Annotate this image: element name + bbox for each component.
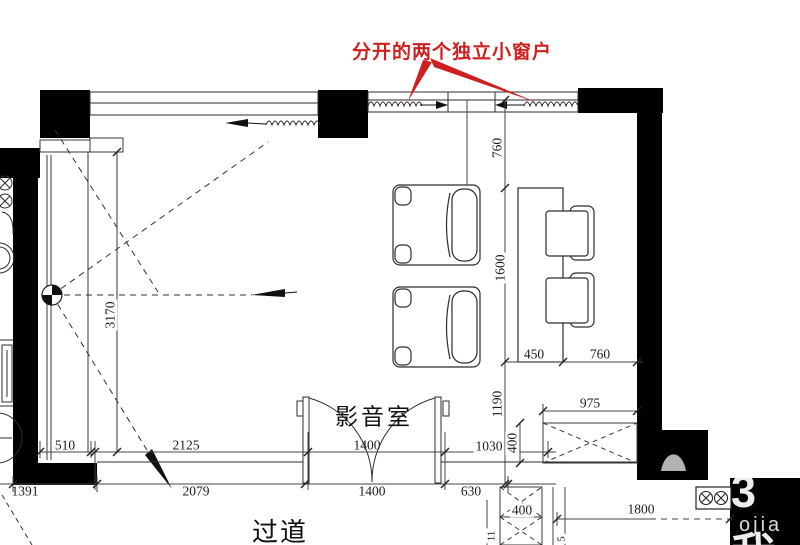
dim-400-depth: 400 (505, 431, 519, 455)
dim-2125: 2125 (173, 438, 200, 452)
dining-chair (546, 206, 594, 260)
red-arrow-left-icon (408, 60, 432, 101)
dimension-ticks (9, 96, 734, 523)
dining-chair (546, 273, 594, 327)
burner-icon (0, 194, 12, 208)
floorplan-drawing (0, 0, 800, 545)
annotation-arrows (408, 58, 538, 103)
annotation-text: 分开的两个独立小窗户 (352, 37, 552, 64)
wall (318, 90, 368, 138)
dim-1190: 1190 (490, 389, 504, 420)
projector-point-icon (42, 285, 62, 305)
floorplan-page: 分开的两个独立小窗户 760 1600 450 760 1190 975 400… (0, 0, 800, 545)
dim-975: 975 (580, 396, 600, 410)
red-arrow-right-icon (430, 58, 538, 103)
dim-450: 450 (524, 347, 544, 361)
projection-lines (52, 130, 268, 455)
dim-3170: 3170 (103, 300, 117, 331)
dim-1600: 1600 (493, 253, 507, 284)
wall (0, 148, 40, 178)
corridor-dashed-line (2, 495, 32, 545)
cabinet-box (543, 423, 637, 463)
dim-1391: 1391 (12, 484, 39, 498)
switch-symbol-box (696, 487, 731, 509)
watermark-subtext: ojia (739, 514, 782, 537)
window-band-right (368, 92, 578, 112)
armchair (393, 185, 480, 265)
dim-760-window: 760 (490, 136, 504, 160)
dim-partial-11: 11 (487, 529, 498, 544)
armchair (393, 287, 480, 367)
dim-1400-door: 1400 (354, 438, 381, 452)
window-band-left (90, 92, 318, 115)
room-label: 影音室 (335, 406, 413, 429)
corridor-label: 过道 (252, 519, 308, 545)
dim-510: 510 (55, 438, 75, 452)
dim-1800: 1800 (628, 502, 655, 516)
dim-630: 630 (461, 484, 481, 498)
dim-400-box: 400 (510, 503, 534, 517)
dim-1400-hall: 1400 (359, 484, 386, 498)
wall (578, 88, 663, 113)
dim-partial-5: 5 (557, 534, 568, 544)
wall (40, 90, 90, 138)
dim-760-right: 760 (590, 347, 610, 361)
burner-icon (0, 176, 12, 190)
wall (637, 113, 662, 430)
dim-2079: 2079 (183, 484, 210, 498)
projection-arrowheads (145, 289, 285, 489)
dim-1030: 1030 (474, 439, 505, 453)
wall (13, 463, 97, 485)
